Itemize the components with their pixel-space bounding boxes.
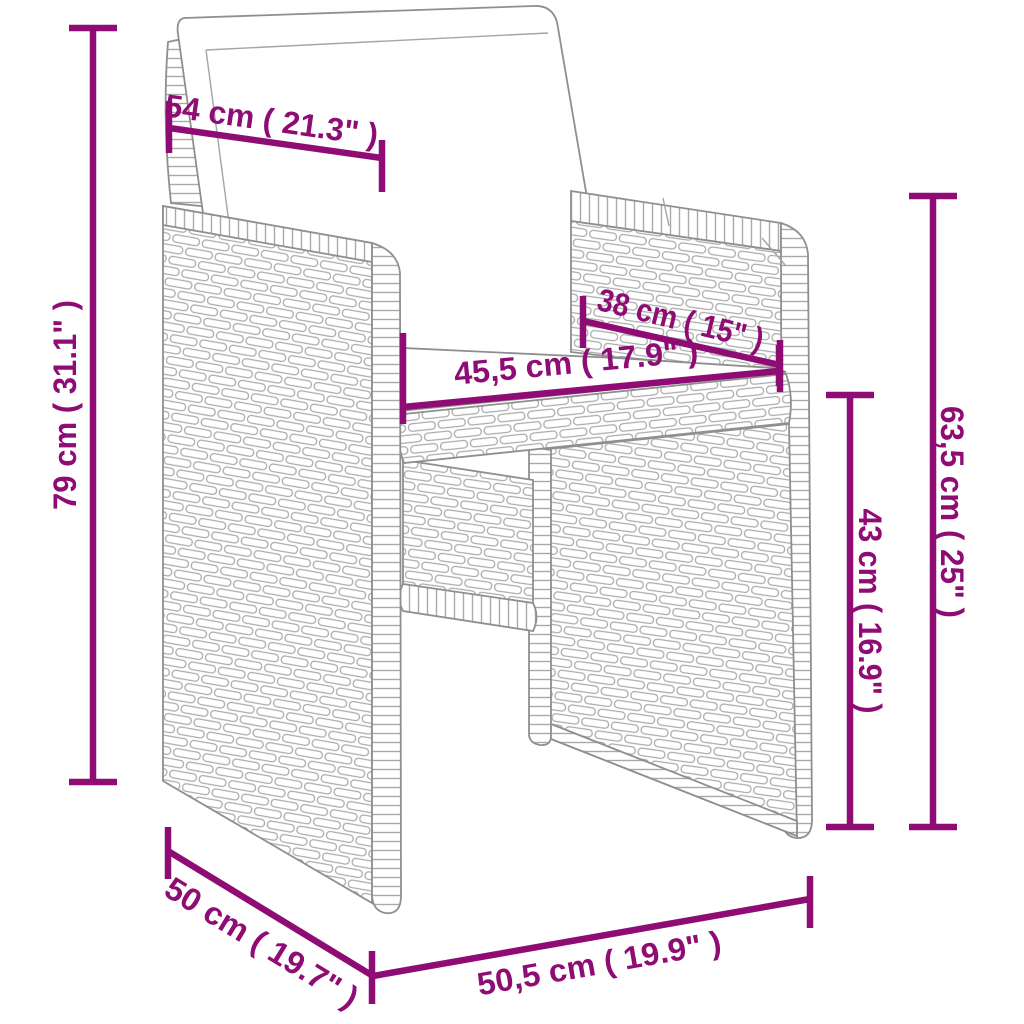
dimension-label-79cm: 79 cm ( 31.1" )	[47, 300, 83, 510]
dimension-total-height: 79 cm ( 31.1" )	[47, 28, 117, 782]
dimension-label-50cm: 50 cm ( 19.7" )	[159, 870, 365, 1016]
dimension-armrest-height: 63,5 cm ( 25" )	[909, 196, 970, 827]
left-inner-face	[403, 460, 533, 604]
left-panel-outer-face	[163, 206, 372, 903]
dimension-base-width: 50,5 cm ( 19.9" )	[373, 876, 810, 1002]
left-panel-front-edge	[372, 243, 401, 913]
dimension-label-43cm: 43 cm ( 16.9" )	[852, 509, 888, 714]
product-dimension-image: 54 cm ( 21.3" ) 79 cm ( 31.1" ) 38 cm ( …	[0, 0, 1024, 1024]
dimension-label-63-5cm: 63,5 cm ( 25" )	[934, 406, 970, 618]
dimension-seat-height: 43 cm ( 16.9" )	[826, 395, 888, 827]
